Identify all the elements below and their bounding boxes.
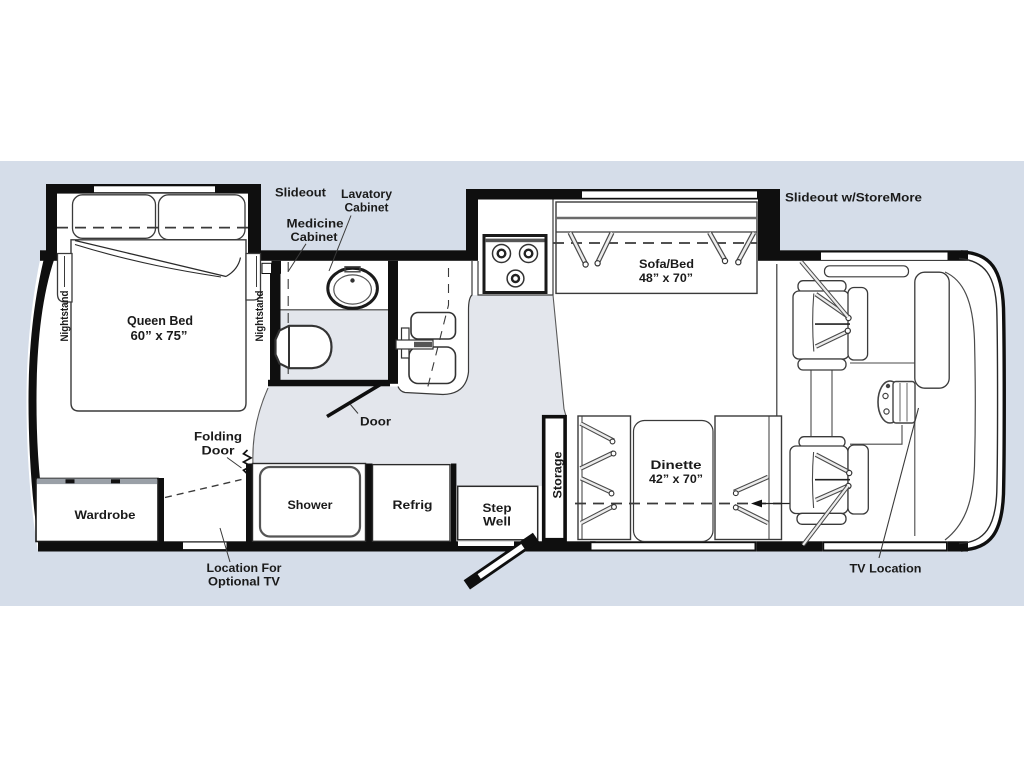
svg-text:Optional TV: Optional TV bbox=[208, 577, 280, 589]
svg-text:48” x 70”: 48” x 70” bbox=[639, 271, 693, 285]
svg-text:Shower: Shower bbox=[288, 500, 334, 512]
svg-text:42” x 70”: 42” x 70” bbox=[649, 472, 703, 486]
svg-text:Refrig: Refrig bbox=[393, 500, 433, 512]
svg-text:TV Location: TV Location bbox=[850, 564, 922, 576]
svg-text:Storage: Storage bbox=[553, 452, 565, 499]
svg-text:Door: Door bbox=[202, 446, 236, 458]
svg-text:Step: Step bbox=[483, 503, 512, 515]
svg-text:Cabinet: Cabinet bbox=[345, 203, 389, 215]
svg-text:Well: Well bbox=[483, 517, 511, 529]
svg-text:Door: Door bbox=[360, 417, 392, 429]
svg-text:Dinette: Dinette bbox=[651, 458, 702, 472]
svg-text:Nightstand: Nightstand bbox=[254, 291, 266, 342]
svg-text:Nightstand: Nightstand bbox=[59, 291, 71, 342]
svg-text:Cabinet: Cabinet bbox=[291, 232, 338, 244]
svg-text:Slideout w/StoreMore: Slideout w/StoreMore bbox=[785, 193, 922, 205]
svg-text:60” x 75”: 60” x 75” bbox=[131, 329, 188, 343]
svg-text:Medicine: Medicine bbox=[287, 219, 344, 231]
svg-text:Sofa/Bed: Sofa/Bed bbox=[639, 257, 694, 271]
svg-text:Location For: Location For bbox=[207, 563, 283, 575]
svg-text:Queen Bed: Queen Bed bbox=[127, 314, 193, 328]
svg-text:Lavatory: Lavatory bbox=[341, 189, 393, 201]
svg-text:Slideout: Slideout bbox=[275, 188, 326, 200]
svg-text:Folding: Folding bbox=[194, 432, 242, 444]
svg-text:Wardrobe: Wardrobe bbox=[75, 510, 136, 522]
